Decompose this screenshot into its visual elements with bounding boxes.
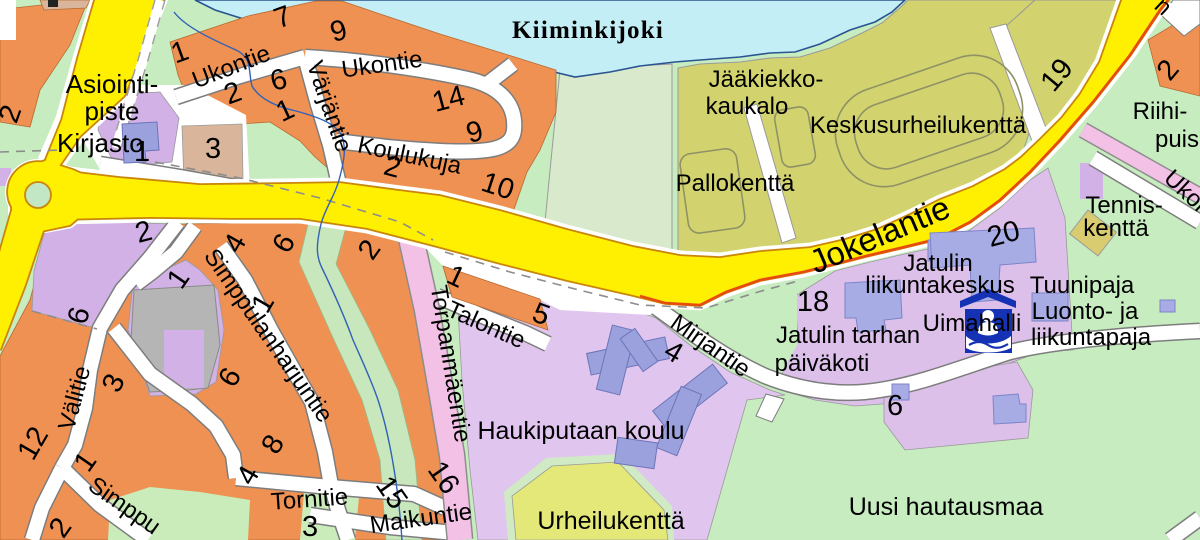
svg-text:Riihi-: Riihi- <box>1133 98 1188 125</box>
svg-text:liikuntakeskus: liikuntakeskus <box>865 272 1014 299</box>
svg-text:kaukalo: kaukalo <box>706 93 789 120</box>
svg-text:liikuntapaja: liikuntapaja <box>1031 324 1152 351</box>
svg-text:Kirjasto: Kirjasto <box>57 128 144 158</box>
svg-text:Haukiputaan koulu: Haukiputaan koulu <box>477 417 684 445</box>
svg-text:Uusi hautausmaa: Uusi hautausmaa <box>849 493 1044 521</box>
svg-text:Asiointi-: Asiointi- <box>66 69 158 99</box>
svg-text:Uimahalli: Uimahalli <box>923 310 1022 337</box>
svg-text:Jatulin tarhan: Jatulin tarhan <box>776 322 920 349</box>
svg-text:6: 6 <box>887 390 903 422</box>
svg-text:3: 3 <box>205 133 221 165</box>
svg-text:3: 3 <box>302 511 318 540</box>
svg-text:Urheilukenttä: Urheilukenttä <box>537 507 684 535</box>
svg-text:Luonto- ja: Luonto- ja <box>1032 298 1139 325</box>
svg-text:Kiiminkijoki: Kiiminkijoki <box>512 17 664 44</box>
svg-text:Tuunipaja: Tuunipaja <box>1030 272 1135 299</box>
svg-text:Keskusurheilukenttä: Keskusurheilukenttä <box>810 112 1027 139</box>
svg-text:Jääkiekko-: Jääkiekko- <box>709 66 824 93</box>
svg-text:Pallokenttä: Pallokenttä <box>676 170 795 197</box>
svg-text:1: 1 <box>134 136 150 168</box>
svg-text:kenttä: kenttä <box>1083 215 1149 242</box>
svg-text:päiväkoti: päiväkoti <box>775 350 870 377</box>
svg-text:piste: piste <box>85 96 140 126</box>
svg-text:puis: puis <box>1155 126 1199 153</box>
svg-text:18: 18 <box>797 286 829 318</box>
